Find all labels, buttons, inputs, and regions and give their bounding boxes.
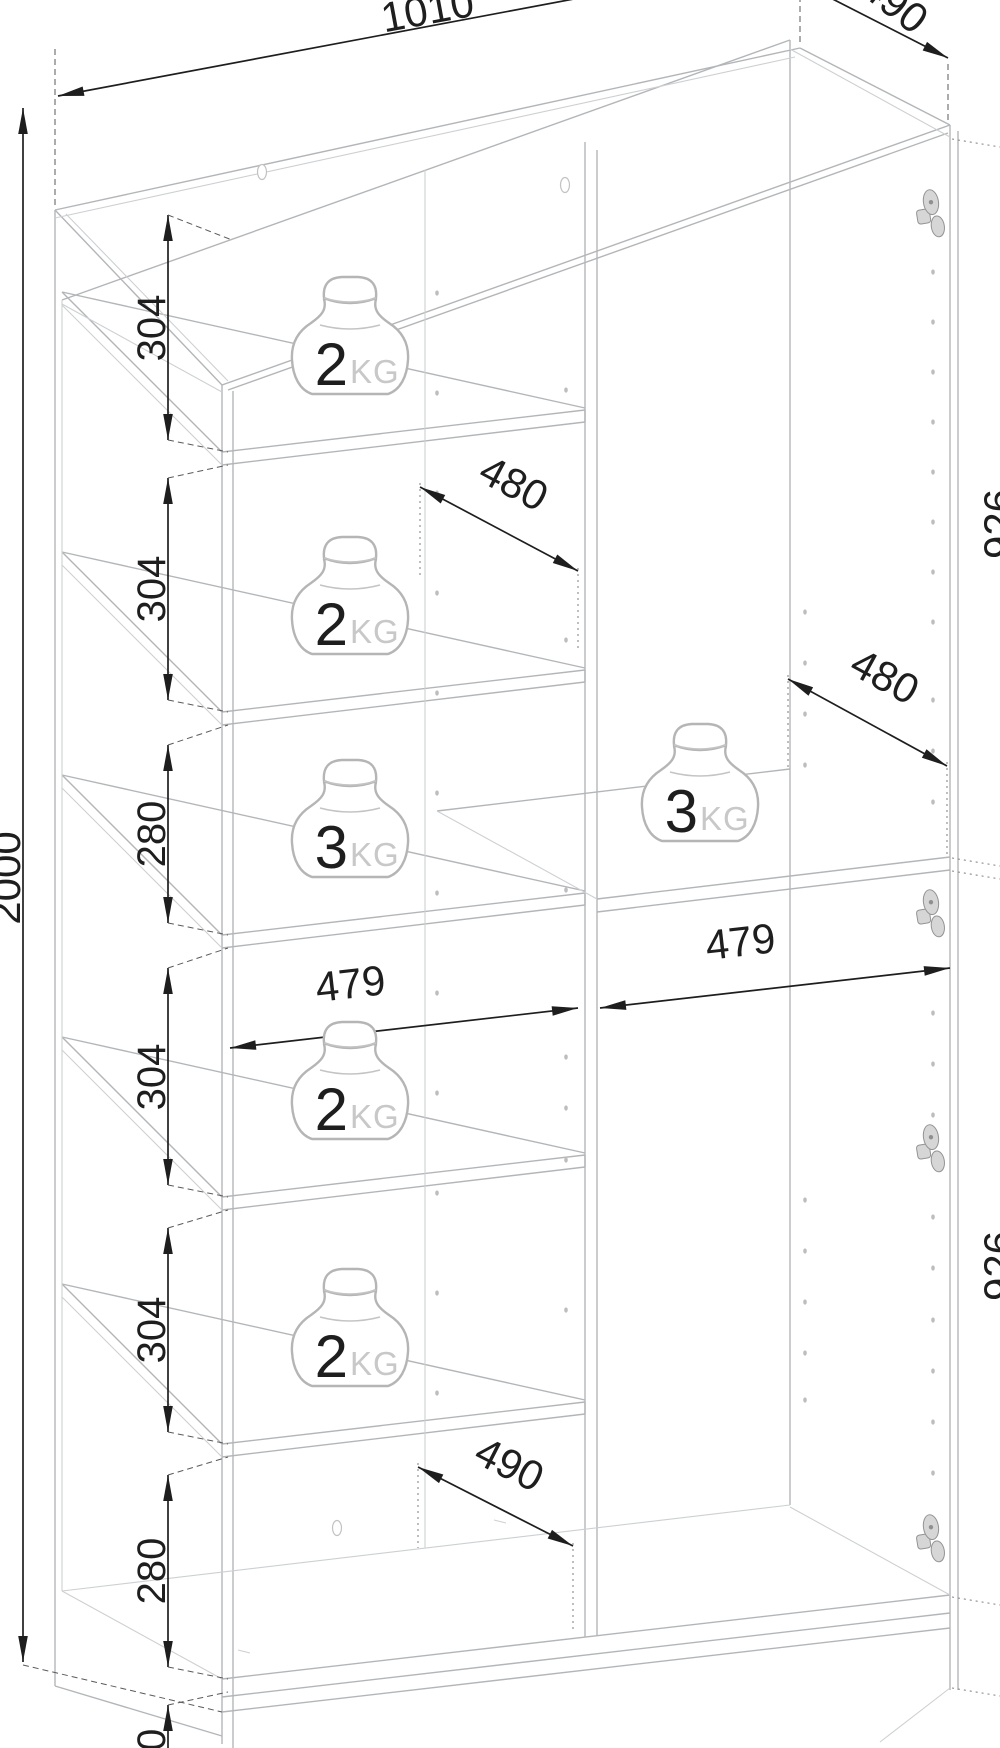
weight-value: 2 <box>315 1076 348 1143</box>
dim-label-chain-2: 304 <box>130 556 174 623</box>
weight-value: 2 <box>315 1323 348 1390</box>
weight-icon: 3KG <box>292 760 408 881</box>
weight-unit: KG <box>350 1098 400 1135</box>
weight-unit: KG <box>350 836 400 873</box>
weight-unit: KG <box>350 353 400 390</box>
cabinet-linework <box>55 40 958 1748</box>
dimension-labels: 1010 490 2000 304 304 280 304 304 280 10… <box>0 0 1000 1748</box>
weight-value: 2 <box>315 331 348 398</box>
weight-value: 2 <box>315 591 348 658</box>
dim-label-chain-1: 304 <box>130 295 174 362</box>
dim-label-right-height-top: 926 <box>975 489 1000 559</box>
dim-label-inner-width-left: 479 <box>313 956 388 1011</box>
weight-value: 3 <box>665 778 698 845</box>
dim-label-inner-width-right: 479 <box>703 914 778 969</box>
dim-label-chain-5: 304 <box>130 1297 174 1364</box>
dim-label-depth-top: 490 <box>853 0 937 43</box>
dim-label-chain-4: 304 <box>130 1044 174 1111</box>
dim-label-depth-bottom: 490 <box>468 1427 552 1501</box>
hinge-icon <box>913 1123 946 1174</box>
dim-label-chain-6: 280 <box>130 1538 174 1605</box>
dim-label-width-top: 1010 <box>377 0 477 41</box>
weight-icon: 2KG <box>292 1269 408 1390</box>
hinge-icon <box>913 1513 946 1564</box>
weight-icon: 2KG <box>292 537 408 658</box>
weight-unit: KG <box>350 1345 400 1382</box>
dim-label-shelf-depth-right: 480 <box>843 639 927 714</box>
dim-label-chain-3: 280 <box>130 801 174 868</box>
weight-unit: KG <box>350 613 400 650</box>
weight-value: 3 <box>315 814 348 881</box>
hinge-icon <box>913 888 946 939</box>
drawing-page: 2KG2KG3KG2KG2KG3KG 1010 490 2000 304 304… <box>0 0 1000 1748</box>
weight-icon: 2KG <box>292 1022 408 1143</box>
weight-icon: 2KG <box>292 277 408 398</box>
hinge-icon <box>913 188 946 239</box>
dim-label-right-height-bottom: 926 <box>975 1231 1000 1301</box>
wardrobe-assembly-diagram: 2KG2KG3KG2KG2KG3KG 1010 490 2000 304 304… <box>0 0 1000 1748</box>
weight-unit: KG <box>700 800 750 837</box>
dim-label-height-total: 2000 <box>0 831 29 924</box>
shelf-load-weights: 2KG2KG3KG2KG2KG3KG <box>292 277 758 1390</box>
weight-icon: 3KG <box>642 724 758 845</box>
dim-label-shelf-depth-upper: 480 <box>472 446 556 520</box>
dim-label-chain-7: 100 <box>130 1729 174 1748</box>
